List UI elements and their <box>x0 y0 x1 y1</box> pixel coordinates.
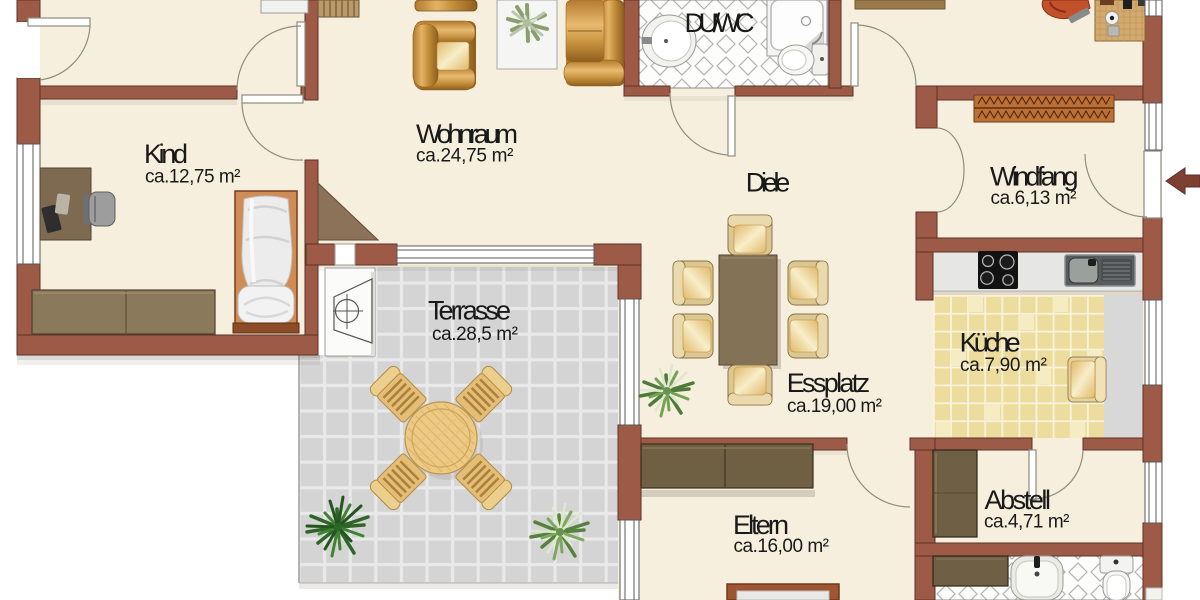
svg-text:ca.19,00 m²: ca.19,00 m² <box>787 396 882 417</box>
svg-text:ca.7,90 m²: ca.7,90 m² <box>960 355 1047 376</box>
svg-text:ca.6,13 m²: ca.6,13 m² <box>991 188 1077 209</box>
svg-text:Kind: Kind <box>144 139 188 169</box>
svg-text:Terrasse: Terrasse <box>428 296 511 326</box>
svg-text:Windfang: Windfang <box>990 162 1079 192</box>
svg-text:ca.4,71 m²: ca.4,71 m² <box>984 512 1070 533</box>
svg-text:DU/WC: DU/WC <box>685 8 755 38</box>
svg-text:ca.28,5 m²: ca.28,5 m² <box>432 324 518 345</box>
svg-text:ca.12,75 m²: ca.12,75 m² <box>145 167 241 188</box>
svg-text:Essplatz: Essplatz <box>787 368 870 398</box>
svg-text:ca.16,00 m²: ca.16,00 m² <box>734 536 830 557</box>
svg-text:ca.24,75 m²: ca.24,75 m² <box>416 146 514 167</box>
svg-text:Küche: Küche <box>960 328 1021 358</box>
svg-text:Wohnraum: Wohnraum <box>416 119 518 149</box>
svg-text:Diele: Diele <box>746 168 791 198</box>
svg-text:Abstell: Abstell <box>985 485 1052 515</box>
